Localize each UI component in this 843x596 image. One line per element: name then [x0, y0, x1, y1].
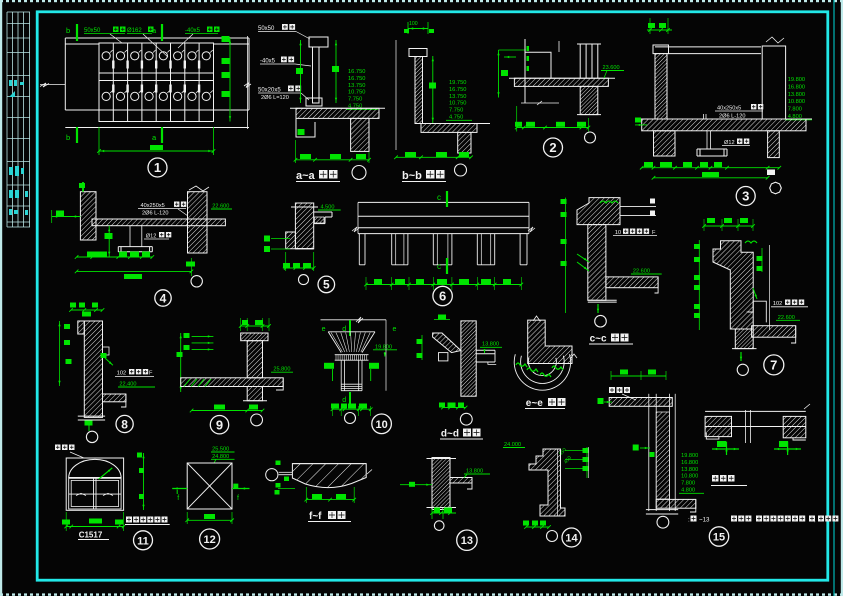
svg-text:40x250x5: 40x250x5 [141, 203, 165, 209]
svg-text:10: 10 [615, 230, 621, 236]
svg-text:F: F [652, 230, 656, 236]
svg-text:7.750: 7.750 [348, 97, 362, 103]
svg-text:13.800: 13.800 [788, 92, 805, 98]
svg-text:e: e [393, 326, 397, 333]
svg-text:11: 11 [137, 535, 149, 547]
svg-text:f~f: f~f [309, 511, 322, 522]
svg-text:13: 13 [461, 535, 473, 547]
svg-text:16.800: 16.800 [681, 460, 698, 466]
svg-text:b: b [66, 133, 70, 142]
svg-text:100: 100 [409, 21, 418, 27]
svg-text:12: 12 [203, 534, 215, 546]
svg-text:13.750: 13.750 [348, 83, 365, 89]
svg-text:2: 2 [549, 140, 556, 155]
svg-text:C1517: C1517 [79, 531, 103, 540]
svg-text:b: b [66, 26, 70, 35]
svg-text:a~a: a~a [296, 170, 316, 182]
svg-text:10.800: 10.800 [681, 474, 698, 480]
svg-text:4: 4 [160, 291, 167, 305]
svg-text:3: 3 [742, 189, 749, 204]
svg-text:f: f [237, 495, 239, 502]
svg-text:d~d: d~d [441, 429, 459, 440]
svg-text:4.750: 4.750 [449, 115, 463, 121]
svg-text:5: 5 [323, 278, 330, 292]
svg-text:2Ø6 L-120: 2Ø6 L-120 [142, 211, 168, 217]
svg-text:9: 9 [216, 417, 223, 432]
svg-text:7.800: 7.800 [788, 107, 802, 113]
svg-text:10: 10 [375, 419, 387, 431]
svg-text:b~b: b~b [402, 170, 422, 182]
svg-text:c: c [437, 193, 441, 202]
svg-text:10.750: 10.750 [449, 101, 466, 107]
svg-text:1: 1 [154, 160, 161, 175]
svg-text:7: 7 [770, 358, 777, 373]
svg-text:19.800: 19.800 [788, 77, 805, 83]
svg-text:4.800: 4.800 [681, 488, 695, 494]
svg-text:e: e [322, 326, 326, 333]
svg-text:10.750: 10.750 [348, 90, 365, 96]
svg-text:2Ø6 L-120: 2Ø6 L-120 [719, 113, 745, 119]
svg-text:f: f [177, 495, 179, 502]
svg-text:2Ø6 L=120: 2Ø6 L=120 [261, 95, 289, 101]
svg-text:13.800: 13.800 [482, 342, 499, 348]
svg-text:7.750: 7.750 [449, 108, 463, 114]
svg-text:15: 15 [713, 531, 725, 543]
svg-text:~13: ~13 [699, 517, 710, 524]
svg-text:13.800: 13.800 [681, 467, 698, 473]
svg-text:8: 8 [121, 417, 128, 431]
svg-text:19.750: 19.750 [449, 80, 466, 86]
svg-text:16.750: 16.750 [348, 76, 365, 82]
svg-text:16.750: 16.750 [348, 69, 365, 75]
svg-text:c~c: c~c [590, 334, 607, 345]
svg-text:16.750: 16.750 [449, 87, 466, 93]
svg-text:14: 14 [565, 532, 578, 544]
svg-text:F: F [149, 371, 153, 377]
svg-text:19.800: 19.800 [681, 453, 698, 459]
svg-text:d: d [342, 397, 346, 404]
svg-text:102: 102 [117, 371, 126, 377]
svg-text:13.750: 13.750 [449, 94, 466, 100]
svg-text:6: 6 [439, 289, 446, 304]
svg-text:e~e: e~e [526, 398, 543, 409]
svg-text:102: 102 [773, 301, 782, 307]
svg-text:7.800: 7.800 [681, 481, 695, 487]
svg-text:c: c [437, 262, 441, 271]
svg-text:16.800: 16.800 [788, 84, 805, 90]
svg-text:10.800: 10.800 [788, 99, 805, 105]
